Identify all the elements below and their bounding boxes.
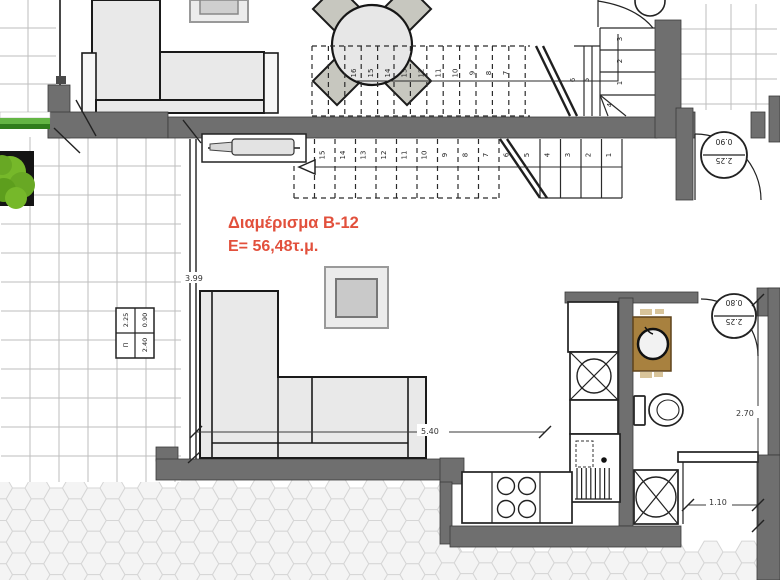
dim-terrace-depth: 3.99 xyxy=(185,274,203,283)
upper-sofa-chaise xyxy=(92,0,160,100)
stair-step-number: 8 xyxy=(485,71,493,75)
door-tag-width: 0.80 xyxy=(725,298,742,307)
wall-tick xyxy=(56,76,66,84)
stair-step-number: 3 xyxy=(616,37,624,41)
planter-strip-green xyxy=(0,118,50,124)
stair-step-number: 5 xyxy=(523,153,531,157)
apartment-area-text: E= 56,48τ.μ. xyxy=(228,238,318,255)
window-tag-tl: 2.25 xyxy=(122,313,130,327)
floor-plan-drawing: 1615141312111098765432116151413121110987… xyxy=(0,0,780,580)
stair-step-number: 4 xyxy=(543,152,551,157)
toilet-tank xyxy=(634,396,645,425)
upper-sofa-armrest-left xyxy=(82,53,96,115)
stair-step-number: 1 xyxy=(605,153,613,157)
shower-screen-ledge xyxy=(678,452,758,462)
wardrobe xyxy=(202,134,306,162)
cooktop-counter xyxy=(462,472,572,523)
bush xyxy=(5,187,27,209)
upper-coffee-table-top xyxy=(200,0,238,14)
stair-step-number: 2 xyxy=(616,59,624,63)
window-tag-tr: 0.90 xyxy=(141,313,149,327)
stair-step-number: 10 xyxy=(421,151,429,160)
stair-step-number: 3 xyxy=(564,153,572,157)
window-tag: 2.25 0.90 Π 2.40 xyxy=(116,308,154,358)
stair-step-number: 7 xyxy=(502,71,510,75)
stair-step-number: 11 xyxy=(400,151,408,160)
sink-drain xyxy=(601,457,607,463)
coffee-table-top xyxy=(336,279,377,317)
planter-strip-dark xyxy=(0,124,50,129)
planter-strip xyxy=(0,112,50,118)
floor-plan: 1615141312111098765432116151413121110987… xyxy=(0,0,780,580)
window-tag-br: 2.40 xyxy=(141,338,149,352)
towel xyxy=(655,309,664,314)
stair-step-number: 11 xyxy=(435,69,443,78)
stair-step-number: 5 xyxy=(583,78,591,82)
stair-step-number: 9 xyxy=(468,71,476,75)
towel xyxy=(654,372,663,377)
burner xyxy=(498,501,515,518)
burner xyxy=(498,478,515,495)
stair-step-number: 7 xyxy=(482,153,490,157)
stair-step-number: 6 xyxy=(503,152,511,157)
stair-step-number: 8 xyxy=(462,153,470,157)
upper-sofa-front xyxy=(96,100,264,113)
stair-step-number: 10 xyxy=(451,69,459,78)
apartment-name-text: Διαμέρισμα Β-12 xyxy=(228,214,359,232)
stair-step-number: 2 xyxy=(584,153,592,157)
burner xyxy=(519,478,536,495)
stair-step-number: 15 xyxy=(318,151,326,160)
kitchen-counter-segment xyxy=(570,400,618,434)
wardrobe-hanger xyxy=(210,142,234,152)
dim-bath-depth: 2.70 xyxy=(736,409,754,418)
stair-step-number: 12 xyxy=(380,151,388,160)
kitchen-cabinet xyxy=(568,302,618,352)
toilet-bowl xyxy=(649,394,683,426)
stair-step-number: 13 xyxy=(359,151,367,160)
stair-step-number: 14 xyxy=(384,68,392,77)
stair-step-number: 9 xyxy=(441,153,449,157)
terrace-top-right-base xyxy=(681,0,777,110)
stair-step-number: 12 xyxy=(418,69,426,78)
dim-shower-width: 1.10 xyxy=(709,498,727,507)
stair-step-number: 14 xyxy=(339,150,347,159)
dim-living-width: 5.40 xyxy=(421,427,439,436)
upper-sofa-seat xyxy=(160,52,264,102)
burner xyxy=(519,501,536,518)
stair-step-number: 15 xyxy=(367,69,375,78)
wardrobe-clothes xyxy=(232,139,294,155)
stair-step-number: 13 xyxy=(401,69,409,78)
stair-step-number: 16 xyxy=(350,68,358,77)
towel xyxy=(640,309,652,315)
door-tag-width: 0.90 xyxy=(715,137,732,146)
upper-sofa-armrest-right xyxy=(264,53,278,113)
door-tag-height: 2.25 xyxy=(725,317,742,326)
towel xyxy=(640,372,652,378)
door-tag-height: 2.25 xyxy=(715,156,732,165)
window-tag-bl: Π xyxy=(122,342,130,347)
